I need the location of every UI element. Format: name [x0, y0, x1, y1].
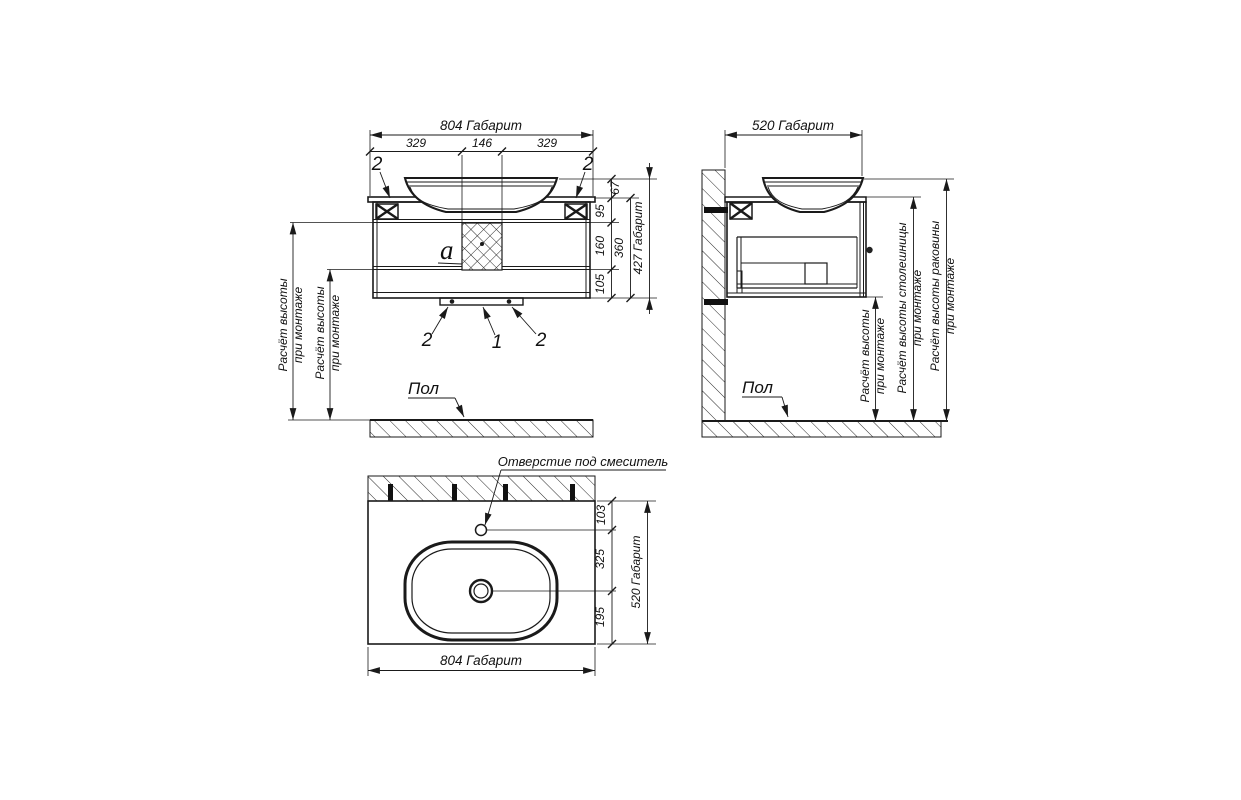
dim-329-left: 329: [406, 136, 426, 150]
callout-1-bottom: 1: [492, 332, 503, 353]
front-view: 804 Габарит 329 146 329 67 95 160 105 36…: [276, 118, 657, 437]
callout-2-top-right: 2: [582, 154, 594, 175]
dim-325: 325: [593, 549, 607, 569]
side-sink-note-line2: при монтаже: [943, 258, 957, 335]
dim-103: 103: [594, 505, 608, 525]
side-view: 520 Габарит Расчёт высоты при монтаже Ра…: [702, 118, 957, 437]
side-cabinet: [704, 197, 873, 305]
dim-804-top: 804 Габарит: [440, 653, 522, 668]
front-height-note-line2: при монтаже: [291, 287, 305, 364]
front-install-height-dims: Расчёт высоты при монтаже Расчёт высоты …: [276, 223, 373, 421]
front-height-note2-line2: при монтаже: [328, 295, 342, 372]
side-drawer: [737, 237, 857, 293]
side-floor-label: Пол: [742, 378, 773, 397]
faucet-hole-label: Отверстие под смеситель: [498, 454, 669, 469]
side-countertop-note-line1: Расчёт высоты столешницы: [895, 222, 909, 393]
side-countertop-note-line2: при монтаже: [910, 270, 924, 347]
dim-804-front: 804 Габарит: [440, 118, 522, 133]
wall-bracket-2: [452, 484, 457, 501]
drawing-canvas: 804 Габарит 329 146 329 67 95 160 105 36…: [0, 0, 1241, 800]
front-bottom-rail: [440, 298, 523, 305]
wall-bracket-4: [570, 484, 575, 501]
wall-bracket-3: [503, 484, 508, 501]
front-bracket-left: [376, 204, 398, 219]
technical-drawing: 804 Габарит 329 146 329 67 95 160 105 36…: [0, 0, 1241, 800]
dim-146: 146: [472, 136, 492, 150]
wall-bolt-lower: [704, 299, 728, 305]
dim-160: 160: [593, 236, 607, 256]
faucet-hole: [476, 525, 487, 536]
front-floor-label: Пол: [408, 379, 439, 398]
side-height-note-line1: Расчёт высоты: [858, 309, 872, 402]
side-sink-bowl: [763, 178, 863, 212]
top-wall-strip: [368, 476, 595, 501]
side-bracket: [730, 203, 752, 219]
dim-520-side: 520 Габарит: [752, 118, 834, 133]
dim-195: 195: [593, 607, 607, 627]
callout-2-top-left: 2: [371, 154, 383, 175]
top-countertop: [368, 501, 595, 644]
wall-bolt-upper: [704, 207, 728, 213]
dim-105: 105: [593, 274, 607, 294]
detail-a-label: a: [440, 235, 454, 265]
side-install-height-dims: Расчёт высоты при монтаже Расчёт высоты …: [858, 179, 957, 421]
dim-67: 67: [608, 180, 622, 195]
front-height-note2-line1: Расчёт высоты: [313, 286, 327, 379]
front-hatched-detail: [462, 223, 502, 270]
callout-2-bottom-right: 2: [535, 330, 547, 351]
front-sink-bowl: [405, 178, 557, 212]
top-dim-width: 804 Габарит: [368, 647, 595, 676]
dim-520-top: 520 Габарит: [629, 536, 643, 609]
side-dim-depth: 520 Габарит: [725, 118, 862, 176]
drain-hole: [470, 580, 492, 602]
door-knob: [866, 247, 872, 253]
dim-95: 95: [593, 204, 607, 218]
side-height-note-line2: при монтаже: [873, 318, 887, 395]
dim-360: 360: [612, 238, 626, 258]
front-bracket-right: [565, 204, 587, 219]
top-view: Отверстие под смеситель 103 325 195 520 …: [368, 454, 668, 676]
front-dim-height: 67 95 160 105 360 427 Габарит: [559, 163, 657, 314]
front-floor: Пол: [288, 379, 593, 437]
dim-329-right: 329: [537, 136, 557, 150]
side-sink-note-line1: Расчёт высоты раковины: [928, 221, 942, 372]
front-height-note-line1: Расчёт высоты: [276, 278, 290, 371]
callout-2-bottom-left: 2: [421, 330, 433, 351]
dim-427: 427 Габарит: [631, 202, 645, 275]
wall-bracket-1: [388, 484, 393, 501]
side-floor: Пол: [702, 378, 948, 437]
